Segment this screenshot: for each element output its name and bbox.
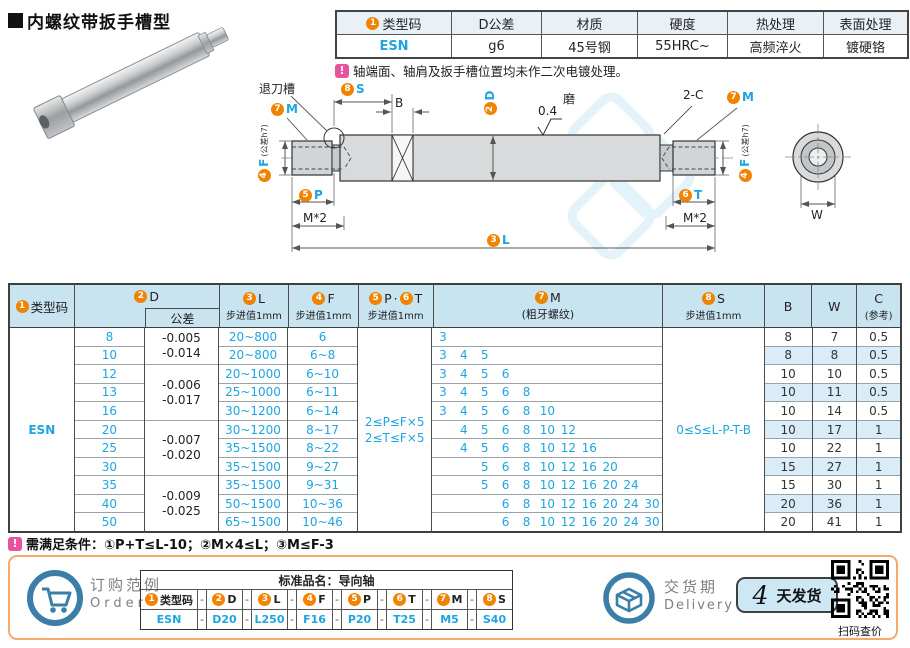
cell-l-d13: 25~1000 [219, 384, 288, 403]
alert-icon: ! [335, 64, 349, 78]
m-slot-16: 16 [579, 476, 600, 494]
cell-l-d50: 65~1500 [219, 513, 288, 531]
m-slot-4: 4 [453, 384, 474, 402]
dim-m-left-label: 7 M [271, 102, 298, 116]
m-slot-30 [642, 347, 663, 365]
spec-header-surface-treatment: 表面处理 [823, 12, 907, 35]
cell-c-d13: 0.5 [857, 384, 900, 403]
m-values-row-d40: 68101216202430 [432, 495, 662, 514]
dim-f-left-label: 4 F (公差h7) [257, 113, 271, 193]
m-slot-6 [495, 328, 516, 346]
cell-d-d13: 13 [75, 384, 145, 403]
m-slot-24: 24 [621, 476, 642, 494]
m-slot-3: 3 [432, 347, 453, 365]
cell-d-d20: 20 [75, 421, 145, 440]
header-m: 7 M (粗牙螺纹) [433, 285, 663, 327]
m-slot-3 [432, 476, 453, 494]
spec-value-heat-treatment: 高频淬火 [727, 35, 823, 57]
cell-l-d12: 20~1000 [219, 365, 288, 384]
m-slot-10 [537, 347, 558, 365]
m-slot-8: 8 [516, 513, 537, 531]
cell-d-d35: 35 [75, 476, 145, 495]
cell-b-d13: 10 [765, 384, 812, 403]
m-values-row-d35: 5681012162024 [432, 476, 662, 495]
m-slot-24 [621, 439, 642, 457]
m-slot-8: 8 [516, 458, 537, 476]
badge-7-icon: 7 [437, 593, 450, 606]
dimension-table-body: ESN 810121316202530354050 -0.005-0.014-0… [10, 328, 900, 531]
header-s: 8 S 步进值1mm [662, 285, 763, 327]
dim-t-label: 6 T [679, 188, 702, 202]
cell-c-d10: 0.5 [857, 347, 900, 366]
m-slot-4: 4 [453, 421, 474, 439]
m-slot-16 [579, 365, 600, 383]
spec-header-heat-treatment: 热处理 [727, 12, 823, 35]
m-slot-20 [600, 384, 621, 402]
dim-f-right-label: 4 F (公差h7) [738, 113, 752, 193]
cell-b-d50: 20 [765, 513, 812, 531]
m-slot-8 [516, 328, 537, 346]
cell-c-d8: 0.5 [857, 328, 900, 347]
badge-1-icon: 1 [145, 593, 158, 606]
cell-c-d50: 1 [857, 513, 900, 531]
pn-separator: - [377, 590, 386, 609]
thread-depth-right-label: M*2 [683, 211, 707, 225]
m-slot-3 [432, 421, 453, 439]
m-slot-5: 5 [474, 365, 495, 383]
m-slot-10: 10 [537, 458, 558, 476]
relief-groove-label: 退刀槽 [259, 80, 295, 97]
m-slot-8 [516, 365, 537, 383]
spec-value-surface-treatment: 镀硬铬 [823, 35, 907, 57]
cell-f-d50: 10~46 [288, 513, 357, 531]
pn-label-ESN: 1类型码 [141, 590, 197, 609]
m-slot-10: 10 [537, 402, 558, 420]
spec-header-type-code: 1类型码 [337, 12, 451, 35]
m-slot-6: 6 [495, 384, 516, 402]
cell-b-d8: 8 [765, 328, 812, 347]
m-slot-16 [579, 421, 600, 439]
cell-w-d25: 22 [813, 439, 857, 458]
cell-d-d30: 30 [75, 458, 145, 477]
m-slot-16 [579, 402, 600, 420]
m-slot-12: 12 [558, 513, 579, 531]
cell-w-d40: 36 [813, 495, 857, 514]
m-values-row-d16: 3456810 [432, 402, 662, 421]
header-type-code: 1 类型码 [10, 285, 74, 327]
spec-header-hardness: 硬度 [637, 12, 727, 35]
cell-c-d16: 0.5 [857, 402, 900, 421]
m-slot-6: 6 [495, 439, 516, 457]
m-slot-10 [537, 328, 558, 346]
cell-w-d16: 14 [813, 402, 857, 421]
m-slot-24: 24 [621, 495, 642, 513]
cell-f-d20: 8~17 [288, 421, 357, 440]
spec-header-text: 材质 [576, 14, 602, 33]
pn-label-D20: 2D [206, 590, 242, 609]
pn-label-T25: 6T [386, 590, 422, 609]
m-values-row-d50: 68101216202430 [432, 513, 662, 531]
pn-label-text: L [273, 593, 280, 606]
qr-block: 扫码查价 [828, 560, 892, 639]
m-slot-3 [432, 495, 453, 513]
m-slot-30 [642, 384, 663, 402]
m-slot-10: 10 [537, 476, 558, 494]
m-slot-3 [432, 513, 453, 531]
pn-label-text: F [318, 593, 326, 606]
badge-8-icon: 8 [341, 83, 354, 96]
tolerance-line: -0.020 [162, 448, 201, 463]
cell-b-d20: 10 [765, 421, 812, 440]
catalog-page: 内螺纹带扳手槽型 1类型码D公差材质硬度热处理表 [0, 0, 910, 648]
m-slot-30 [642, 328, 663, 346]
tolerance-line: -0.017 [162, 393, 201, 408]
m-slot-30 [642, 421, 663, 439]
pn-value-F16: F16 [296, 610, 332, 629]
m-slot-20: 20 [600, 495, 621, 513]
badge-1-icon: 1 [366, 17, 379, 30]
m-slot-16 [579, 384, 600, 402]
pn-label-L250: 3L [251, 590, 287, 609]
badge-2-icon: 2 [134, 290, 147, 303]
cell-b-d12: 10 [765, 365, 812, 384]
cell-d-d16: 16 [75, 402, 145, 421]
grind-label: 磨 [563, 90, 575, 107]
spec-header-text: 热处理 [756, 14, 795, 33]
pn-separator: - [197, 590, 206, 609]
pn-value-S40: S40 [476, 610, 512, 629]
part-number-labels-row: 1类型码-2D-3L-4F-5P-6T-7M-8S [141, 590, 512, 609]
spec-header-text: 类型码 [382, 14, 421, 33]
m-slot-5: 5 [474, 384, 495, 402]
m-slot-10 [537, 384, 558, 402]
pn-label-F16: 4F [296, 590, 332, 609]
badge-6-icon: 6 [393, 593, 406, 606]
delivery-box-icon [602, 571, 656, 625]
m-slot-20 [600, 439, 621, 457]
m-slot-10: 10 [537, 513, 558, 531]
m-slot-5: 5 [474, 421, 495, 439]
badge-8-icon: 8 [483, 593, 496, 606]
spec-value-d-tolerance: g6 [451, 35, 541, 57]
cell-f-d25: 8~22 [288, 439, 357, 458]
qr-caption: 扫码查价 [828, 623, 892, 639]
m-slot-12 [558, 384, 579, 402]
badge-4-icon: 4 [303, 593, 316, 606]
badge-3-icon: 3 [487, 234, 500, 247]
dim-b-label: B [395, 96, 403, 110]
m-values-row-d25: 4568101216 [432, 439, 662, 458]
m-slot-30 [642, 458, 663, 476]
m-slot-16 [579, 347, 600, 365]
m-slot-16: 16 [579, 495, 600, 513]
cell-f-d10: 6~8 [288, 347, 357, 366]
pn-separator: - [377, 610, 386, 629]
pn-separator: - [422, 590, 431, 609]
pn-value-P20: P20 [341, 610, 377, 629]
m-slot-3: 3 [432, 365, 453, 383]
spec-header-text: D公差 [478, 14, 514, 33]
badge-2-icon: 2 [212, 593, 225, 606]
m-slot-20: 20 [600, 513, 621, 531]
pn-label-text: S [498, 593, 506, 606]
m-slot-3 [432, 458, 453, 476]
part-number-table: 标准品名：导向轴 1类型码-2D-3L-4F-5P-6T-7M-8S ESN-D… [140, 570, 513, 630]
m-slot-24 [621, 365, 642, 383]
m-slot-10 [537, 365, 558, 383]
m-slot-30 [642, 476, 663, 494]
m-slot-24 [621, 347, 642, 365]
drawing-geometry [245, 80, 905, 282]
technical-drawing: 退刀槽 8 S B 2 D 0.4 磨 2-C 7 M 7 M 4 F (公差h… [245, 80, 905, 282]
m-slot-30 [642, 402, 663, 420]
header-l: 3 L 步进值1mm [219, 285, 289, 327]
cart-icon [26, 569, 84, 627]
pn-separator: - [422, 610, 431, 629]
badge-7-icon: 7 [271, 103, 284, 116]
m-slot-8: 8 [516, 384, 537, 402]
alert-icon: ! [8, 537, 22, 551]
pn-label-text: T [408, 593, 416, 606]
m-slot-8: 8 [516, 421, 537, 439]
badge-2-icon: 2 [484, 102, 497, 115]
m-slot-4: 4 [453, 365, 474, 383]
tolerance-group-3: -0.009-0.025 [145, 476, 218, 531]
m-slot-20: 20 [600, 458, 621, 476]
cell-b-d35: 15 [765, 476, 812, 495]
cell-w-d20: 17 [813, 421, 857, 440]
pn-separator: - [467, 610, 476, 629]
m-slot-12: 12 [558, 476, 579, 494]
delivery-days: 4 [753, 581, 769, 610]
dimension-table: 1 类型码 2 D 公差 3 L 步进值1mm 4 F 步进值1mm 5 [8, 283, 902, 533]
pn-label-text: P [363, 593, 371, 606]
m-values-row-d12: 3456 [432, 365, 662, 384]
badge-6-icon: 6 [679, 189, 692, 202]
pn-label-text: M [452, 593, 463, 606]
pt-constraint-line: 2≤P≤F×5 [365, 415, 425, 429]
delivery-label: 交货期 Delivery [664, 577, 734, 615]
dimension-table-header: 1 类型码 2 D 公差 3 L 步进值1mm 4 F 步进值1mm 5 [10, 285, 900, 328]
m-values-row-d8: 3 [432, 328, 662, 347]
m-slot-8 [516, 347, 537, 365]
m-slot-24: 24 [621, 513, 642, 531]
pn-label-P20: 5P [341, 590, 377, 609]
cell-c-d20: 1 [857, 421, 900, 440]
m-slot-24 [621, 384, 642, 402]
header-w: W [811, 285, 856, 327]
cell-l-d35: 35~1500 [219, 476, 288, 495]
m-slot-5 [474, 328, 495, 346]
pn-label-M5: 7M [431, 590, 467, 609]
delivery-days-suffix: 天发货 [776, 585, 821, 606]
m-slot-6 [495, 347, 516, 365]
m-slot-5: 5 [474, 402, 495, 420]
m-slot-20: 20 [600, 476, 621, 494]
pn-value-ESN: ESN [141, 610, 197, 629]
cell-d-d40: 40 [75, 495, 145, 514]
cell-l-d30: 35~1500 [219, 458, 288, 477]
m-slot-6: 6 [495, 513, 516, 531]
m-slot-6: 6 [495, 402, 516, 420]
pn-value-L250: L250 [251, 610, 287, 629]
cell-d-d10: 10 [75, 347, 145, 366]
spec-header-d-tolerance: D公差 [451, 12, 541, 35]
header-c: C (参考) [856, 285, 900, 327]
badge-3-icon: 3 [243, 292, 256, 305]
m-slot-5: 5 [474, 458, 495, 476]
m-slot-12: 12 [558, 439, 579, 457]
m-slot-8: 8 [516, 439, 537, 457]
delivery-days-pill: 4 天发货 [736, 577, 838, 613]
cell-d-d12: 12 [75, 365, 145, 384]
badge-6-icon: 6 [400, 292, 413, 305]
m-slot-6: 6 [495, 458, 516, 476]
cell-f-d8: 6 [288, 328, 357, 347]
pn-value-M5: M5 [431, 610, 467, 629]
cell-w-d35: 30 [813, 476, 857, 495]
cell-f-d16: 6~14 [288, 402, 357, 421]
badge-7-icon: 7 [727, 91, 740, 104]
m-slot-12: 12 [558, 421, 579, 439]
m-slot-16: 16 [579, 439, 600, 457]
cell-d-d8: 8 [75, 328, 145, 347]
pn-separator: - [467, 590, 476, 609]
pn-label-S40: 8S [476, 590, 512, 609]
badge-8-icon: 8 [702, 292, 715, 305]
m-slot-6: 6 [495, 476, 516, 494]
badge-4-icon: 4 [312, 292, 325, 305]
m-slot-12 [558, 347, 579, 365]
m-slot-10: 10 [537, 421, 558, 439]
tolerance-group-0: -0.005-0.014 [145, 328, 218, 365]
badge-5-icon: 5 [299, 189, 312, 202]
m-slot-4 [453, 458, 474, 476]
m-slot-24 [621, 328, 642, 346]
tolerance-line: -0.005 [162, 331, 201, 346]
header-d-tolerance: 公差 [145, 308, 219, 327]
m-slot-6: 6 [495, 421, 516, 439]
m-slot-20 [600, 365, 621, 383]
cell-c-d12: 0.5 [857, 365, 900, 384]
pt-constraint-cell: 2≤P≤F×52≤T≤F×5 [358, 328, 432, 531]
spec-header-text: 硬度 [669, 14, 695, 33]
m-slot-10: 10 [537, 439, 558, 457]
m-slot-3: 3 [432, 402, 453, 420]
cell-l-d20: 30~1200 [219, 421, 288, 440]
tolerance-line: -0.006 [162, 378, 201, 393]
type-code-cell: ESN [10, 328, 74, 531]
cell-d-d25: 25 [75, 439, 145, 458]
m-slot-10: 10 [537, 495, 558, 513]
m-slot-5 [474, 513, 495, 531]
cell-f-d40: 10~36 [288, 495, 357, 514]
spec-table: 1类型码D公差材质硬度热处理表面处理 ESNg645号钢55HRC~高频淬火镀硬… [335, 10, 909, 59]
dim-s-label: 8 S [341, 82, 365, 96]
m-slot-4: 4 [453, 439, 474, 457]
cell-l-d25: 35~1500 [219, 439, 288, 458]
cell-b-d30: 15 [765, 458, 812, 477]
cell-b-d25: 10 [765, 439, 812, 458]
m-slot-20 [600, 347, 621, 365]
m-slot-5 [474, 495, 495, 513]
m-slot-12: 12 [558, 495, 579, 513]
header-f: 4 F 步进值1mm [288, 285, 358, 327]
cell-d-d50: 50 [75, 513, 145, 531]
pn-value-D20: D20 [206, 610, 242, 629]
pn-separator: - [197, 610, 206, 629]
cell-w-d50: 41 [813, 513, 857, 531]
standard-product-name: 标准品名：导向轴 [141, 571, 512, 590]
pn-separator: - [287, 590, 296, 609]
m-slot-20 [600, 328, 621, 346]
chamfer-label: 2-C [683, 88, 703, 102]
cell-b-d16: 10 [765, 402, 812, 421]
part-number-values-row: ESN-D20-L250-F16-P20-T25-M5-S40 [141, 609, 512, 629]
cell-c-d25: 1 [857, 439, 900, 458]
tolerance-line: -0.007 [162, 433, 201, 448]
pn-label-text: D [227, 593, 236, 606]
roughness-value: 0.4 [538, 104, 557, 118]
dim-l-label: 3 L [487, 233, 510, 247]
dim-m-right-label: 7 M [727, 90, 754, 104]
badge-4-icon: 4 [739, 169, 752, 182]
m-slot-4 [453, 513, 474, 531]
thread-depth-left-label: M*2 [303, 211, 327, 225]
cell-f-d35: 9~31 [288, 476, 357, 495]
m-slot-6: 6 [495, 365, 516, 383]
cell-c-d35: 1 [857, 476, 900, 495]
m-slot-30: 30 [642, 495, 663, 513]
m-slot-4 [453, 495, 474, 513]
spec-header-material: 材质 [541, 12, 637, 35]
header-b: B [764, 285, 812, 327]
spec-value-hardness: 55HRC~ [637, 35, 727, 57]
plating-note: ! 轴端面、轴肩及扳手槽位置均未作二次电镀处理。 [335, 61, 628, 80]
cell-l-d40: 50~1500 [219, 495, 288, 514]
m-slot-12 [558, 365, 579, 383]
pn-separator: - [332, 610, 341, 629]
cell-f-d13: 6~11 [288, 384, 357, 403]
m-slot-4: 4 [453, 402, 474, 420]
tolerance-line: -0.009 [162, 489, 201, 504]
cell-f-d12: 6~10 [288, 365, 357, 384]
m-slot-30 [642, 439, 663, 457]
m-slot-5: 5 [474, 439, 495, 457]
badge-1-icon: 1 [16, 300, 29, 313]
m-slot-16 [579, 328, 600, 346]
qr-code [831, 560, 889, 618]
spec-table-header-row: 1类型码D公差材质硬度热处理表面处理 [337, 12, 907, 35]
cell-l-d16: 30~1200 [219, 402, 288, 421]
m-slot-24 [621, 402, 642, 420]
cell-w-d13: 11 [813, 384, 857, 403]
m-slot-24 [621, 458, 642, 476]
m-slot-30: 30 [642, 513, 663, 531]
pn-separator: - [242, 610, 251, 629]
cell-c-d30: 1 [857, 458, 900, 477]
pn-label-text: 类型码 [160, 592, 193, 608]
dim-d-label: 2 D [483, 86, 497, 120]
m-slot-5: 5 [474, 347, 495, 365]
m-slot-4 [453, 476, 474, 494]
m-slot-4: 4 [453, 347, 474, 365]
cell-w-d8: 7 [813, 328, 857, 347]
product-photo [15, 25, 237, 143]
spec-value-type-code: ESN [337, 35, 451, 57]
badge-5-icon: 5 [348, 593, 361, 606]
m-slot-3: 3 [432, 328, 453, 346]
